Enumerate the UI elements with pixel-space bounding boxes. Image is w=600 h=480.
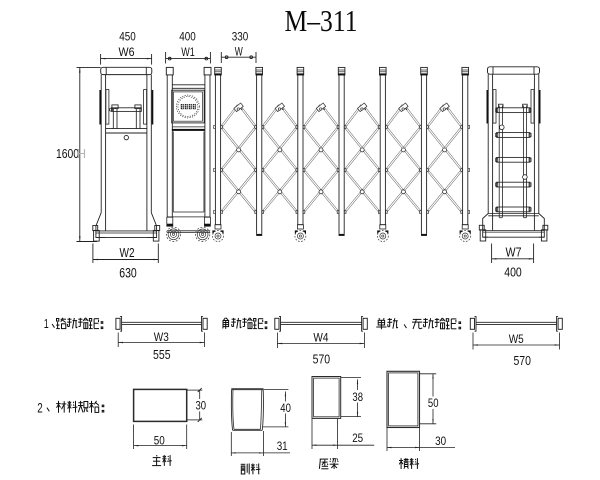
svg-text:25: 25	[352, 432, 363, 445]
svg-text:1600: 1600	[56, 146, 79, 161]
svg-text:570: 570	[513, 353, 531, 368]
svg-text:30: 30	[196, 400, 207, 413]
svg-text:2: 2	[37, 401, 43, 416]
svg-text:W: W	[235, 45, 243, 58]
svg-text:555: 555	[153, 347, 171, 362]
svg-text:W6: W6	[119, 46, 135, 59]
svg-text:31: 31	[277, 440, 288, 453]
svg-text:50: 50	[428, 397, 439, 410]
svg-text:W4: W4	[313, 331, 328, 345]
svg-text:M–311: M–311	[285, 3, 358, 38]
svg-text:W1: W1	[181, 46, 195, 59]
svg-text:400: 400	[504, 264, 522, 279]
svg-text:50: 50	[154, 434, 165, 447]
svg-text:W3: W3	[154, 330, 169, 344]
svg-text:H: H	[77, 146, 86, 161]
svg-text:1: 1	[44, 316, 49, 331]
svg-text:38: 38	[352, 391, 363, 404]
svg-text:570: 570	[313, 352, 331, 367]
svg-text:W7: W7	[506, 245, 522, 259]
svg-text:30: 30	[435, 435, 446, 448]
svg-text:630: 630	[119, 265, 137, 280]
svg-text:W5: W5	[509, 332, 524, 346]
svg-text:40: 40	[280, 402, 291, 415]
svg-text:330: 330	[232, 30, 249, 44]
svg-text:W2: W2	[120, 246, 135, 260]
svg-text:400: 400	[179, 30, 196, 44]
svg-text:450: 450	[119, 30, 136, 44]
